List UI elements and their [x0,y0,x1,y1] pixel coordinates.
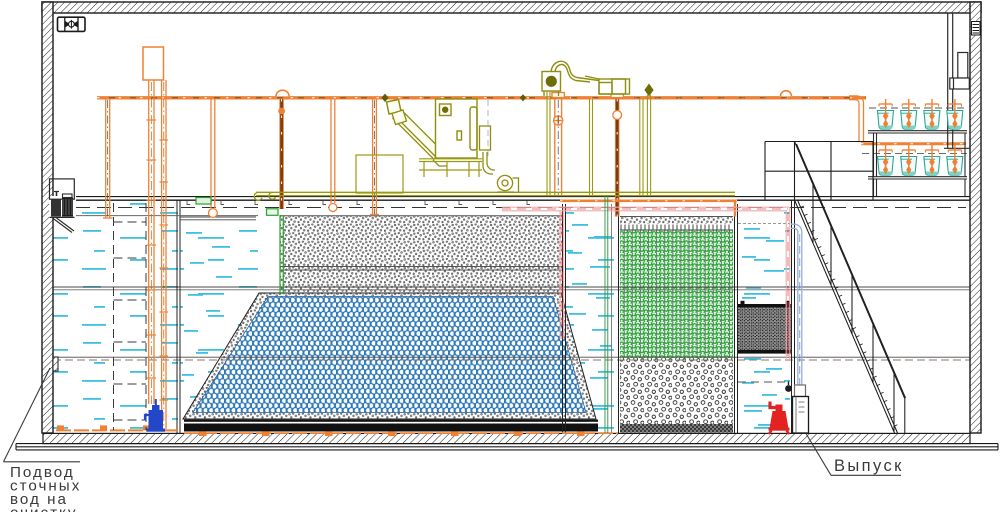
svg-text:очистку: очистку [10,505,77,512]
svg-text:Выпуск: Выпуск [834,457,904,475]
